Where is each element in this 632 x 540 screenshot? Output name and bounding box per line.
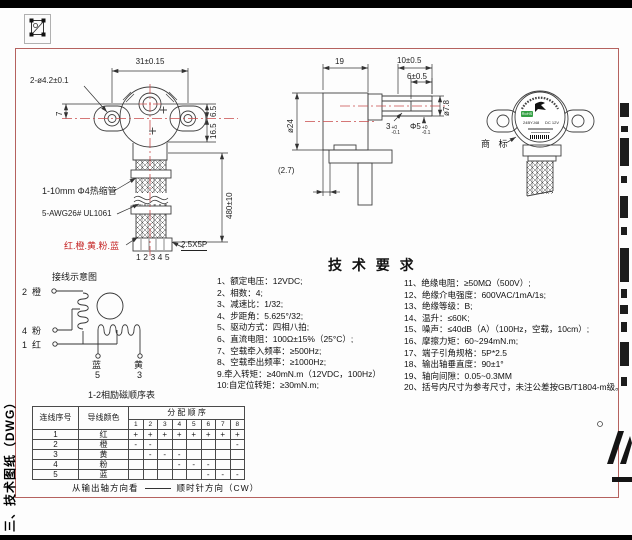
cutoff-glyph-fragment: [620, 103, 629, 117]
seq-cell: -: [129, 440, 144, 450]
wire-color: 黄: [79, 450, 129, 460]
step-number: 6: [201, 420, 216, 430]
label-connector-type: 2.5X5P: [181, 240, 207, 251]
terminal-color: 红: [32, 340, 41, 350]
tech-req-item: 9.牵入转矩：≥40mN.m（12VDC，100Hz）: [217, 369, 381, 381]
seq-cell: [129, 450, 144, 460]
rohs-badge: RoHS: [521, 111, 533, 117]
dim-plate-ref: (2.7): [278, 166, 294, 175]
seq-cell: -: [230, 470, 245, 480]
table-header-wire-no: 连线序号: [33, 407, 79, 430]
tech-req-item: 13、绝缘等级：B;: [404, 301, 624, 313]
label-model: 24BYJ48: [523, 120, 539, 125]
seq-cell: [158, 470, 173, 480]
terminal-4-pink: 4粉: [22, 324, 41, 337]
dim-boss-diameter: ø7.8: [442, 100, 451, 116]
step-number: 5: [187, 420, 202, 430]
wire-no: 1: [33, 430, 79, 440]
tech-req-item: 16、摩擦力矩：60~294mN.m;: [404, 336, 624, 348]
seq-cell: +: [129, 430, 144, 440]
label-wire-spec: 5-AWG26# UL1061: [42, 209, 112, 218]
cutoff-glyph-fragment: [620, 196, 628, 218]
dim-mounting-holes: 2-ø4.2±0.1: [30, 76, 69, 85]
step-number: 8: [230, 420, 245, 430]
tech-req-item: 17、端子引角规格：5P*2.5: [404, 348, 624, 360]
side-view-linework: [323, 93, 432, 205]
tech-req-item: 8、空载牵出频率：≥1000Hz;: [217, 357, 381, 369]
label-url-line: [528, 128, 553, 130]
cutoff-glyph-fragment: [620, 342, 629, 366]
seq-cell: [143, 460, 158, 470]
cutoff-glyph-fragment: [620, 248, 629, 282]
tech-requirements-left-column: 1、额定电压：12VDC; 2、相数：4; 3、减速比：1/32; 4、步距角：…: [217, 276, 381, 392]
drawing-sheet: 三、技术图纸（DWG）: [0, 0, 632, 540]
dim-shaft-base: Φ5: [410, 122, 421, 131]
terminal-number: 2: [22, 287, 32, 297]
table-header-sequence: 分 配 顺 序: [129, 407, 245, 420]
dim-flat-tol-lower: -0.1: [391, 131, 400, 136]
dim-6-5: 6.5: [209, 106, 218, 117]
terminal-number: 1: [22, 340, 32, 350]
wire-no: 2: [33, 440, 79, 450]
dim-shaft-diameter: Φ5+0-0.1: [410, 122, 430, 136]
step-number: 3: [158, 420, 173, 430]
wire-color: 红: [79, 430, 129, 440]
seq-cell: [216, 440, 231, 450]
seq-cell: [158, 440, 173, 450]
tech-req-item: 12、绝缘介电强度：600VAC/1mA/1s;: [404, 290, 624, 302]
side-view-centerlines: [305, 106, 448, 122]
seq-cell: -: [201, 460, 216, 470]
dim-hole-spacing: 31±0.15: [126, 57, 174, 66]
terminal-1-red: 1红: [22, 338, 41, 351]
seq-cell: +: [172, 430, 187, 440]
seq-cell: [230, 460, 245, 470]
tech-req-item: 4、步距角：5.625°/32;: [217, 311, 381, 323]
seq-cell: [187, 450, 202, 460]
tech-req-item: 18、输出轴垂直度：90±1°: [404, 359, 624, 371]
sequence-table: 连线序号 导线颜色 分 配 顺 序 1 2 3 4 5 6 7 8 1 红 + …: [32, 406, 245, 480]
label-pin-numbers: 12345: [136, 252, 172, 262]
tech-req-item: 7、空载牵入频率：≥500Hz;: [217, 346, 381, 358]
terminal-3-yellow-num: 3: [137, 370, 142, 380]
seq-cell: +: [187, 430, 202, 440]
cutoff-glyph-fragment: [620, 305, 628, 314]
seq-cell: -: [143, 450, 158, 460]
seq-cell: -: [201, 470, 216, 480]
seq-cell: -: [172, 460, 187, 470]
wiring-diagram-linework: [52, 289, 142, 358]
bottom-right-cutoff-logo: [607, 431, 632, 482]
table-footer-note: 从输出轴方向看 顺时针方向（CW）: [72, 482, 259, 494]
step-number: 4: [172, 420, 187, 430]
seq-cell: -: [172, 450, 187, 460]
sheet-side-label: 三、技术图纸（DWG）: [1, 396, 18, 532]
dim-shaft-tol-lower: -0.1: [422, 131, 431, 136]
wire-no: 5: [33, 470, 79, 480]
wire-no: 4: [33, 460, 79, 470]
tech-req-item: 19、轴向间隙：0.05~0.3MM: [404, 371, 624, 383]
seq-cell: [201, 440, 216, 450]
seq-cell: [201, 450, 216, 460]
dim-flat-base: 3: [386, 122, 390, 131]
wiring-diagram-title: 接线示意图: [52, 270, 97, 283]
seq-cell: [158, 460, 173, 470]
seq-cell: +: [230, 430, 245, 440]
seq-cell: -: [143, 440, 158, 450]
dim-shaft-offset: 7: [55, 112, 64, 116]
seq-cell: +: [216, 430, 231, 440]
footer-view-direction: 从输出轴方向看: [72, 482, 139, 494]
dim-shaft-length: 10±0.5: [397, 56, 421, 65]
seq-cell: [129, 470, 144, 480]
seq-cell: [172, 470, 187, 480]
seq-cell: [187, 470, 202, 480]
step-number: 1: [129, 420, 144, 430]
wire-color: 橙: [79, 440, 129, 450]
table-header-wire-color: 导线颜色: [79, 407, 129, 430]
tech-requirements-right-column: 11、绝缘电阻：≥50MΩ（500V）; 12、绝缘介电强度：600VAC/1m…: [404, 278, 624, 394]
rotor-circle: [97, 293, 123, 319]
step-number: 7: [216, 420, 231, 430]
tech-req-item: 6、直流电阻：100Ω±15%（25°C）;: [217, 334, 381, 346]
wire-color: 粉: [79, 460, 129, 470]
seq-cell: [129, 460, 144, 470]
sequence-table-title: 1-2相励磁顺序表: [88, 388, 155, 401]
dim-body-diameter: ø24: [286, 119, 295, 133]
seq-cell: +: [143, 430, 158, 440]
terminal-color: 橙: [32, 287, 41, 297]
seq-cell: -: [187, 460, 202, 470]
cutoff-glyph-fragment: [620, 138, 629, 166]
terminal-color: 粉: [32, 326, 41, 336]
label-voltage: DC 12V: [545, 120, 559, 125]
tech-req-item: 1、额定电压：12VDC;: [217, 276, 381, 288]
tech-req-item: 2、相数：4;: [217, 288, 381, 300]
table-row: 2 橙 - - -: [33, 440, 245, 450]
wire-color: 蓝: [79, 470, 129, 480]
tech-req-item: 15、噪声：≤40dB（A）（100Hz，空载，10cm）;: [404, 324, 624, 336]
cutoff-glyph-fragment: [621, 322, 627, 332]
seq-cell: -: [230, 440, 245, 450]
terminal-number: 4: [22, 326, 32, 336]
label-heatshrink-tube: 1-10mm Φ4热缩管: [42, 184, 117, 197]
dim-16-5: 16.5: [209, 123, 218, 139]
tech-req-item: 14、温升：≤60K;: [404, 313, 624, 325]
coil-horizontal: [98, 325, 140, 336]
tech-req-item: 11、绝缘电阻：≥50MΩ（500V）;: [404, 278, 624, 290]
terminal-5-blue-num: 5: [95, 370, 100, 380]
seq-cell: +: [158, 430, 173, 440]
table-row: 5 蓝 - - -: [33, 470, 245, 480]
tech-requirements-title: 技 术 要 求: [328, 255, 417, 275]
label-wire-colors: 红.橙.黄.粉.蓝: [64, 239, 119, 252]
wire-no: 3: [33, 450, 79, 460]
dim-body-length: 19: [335, 57, 344, 66]
image-placeholder-icon[interactable]: [25, 15, 51, 44]
seq-cell: [216, 460, 231, 470]
footer-dash: [145, 488, 171, 489]
seq-cell: [187, 440, 202, 450]
table-row: 4 粉 - - -: [33, 460, 245, 470]
label-barcode: [530, 135, 550, 139]
table-row: 1 红 + + + + + + + +: [33, 430, 245, 440]
cutoff-glyph-fragment: [621, 227, 627, 235]
cutoff-glyph-fragment: [621, 377, 627, 386]
terminal-2-orange: 2橙: [22, 285, 41, 298]
footer-rotation-direction: 顺时针方向（CW）: [177, 482, 260, 494]
trademark-callout: 商 标: [481, 137, 511, 150]
seq-cell: [143, 470, 158, 480]
seq-cell: [230, 450, 245, 460]
dim-wire-length: 480±10: [225, 192, 234, 219]
seq-cell: -: [158, 450, 173, 460]
tech-req-item: 20、括号内尺寸为参考尺寸，未注公差按GB/T1804-m级。: [404, 382, 624, 394]
cutoff-glyph-fragment: [621, 289, 627, 298]
coil-vertical: [78, 293, 89, 329]
cutoff-glyph-fragment: [621, 126, 628, 132]
cutoff-glyph-fragment: [621, 176, 627, 183]
label-model-row: 24BYJ48 DC 12V: [523, 120, 559, 125]
seq-cell: +: [201, 430, 216, 440]
table-row: 3 黄 - - -: [33, 450, 245, 460]
tech-req-item: 10:自定位转矩：≥30mN.m;: [217, 380, 381, 392]
tech-req-item: 3、减速比：1/32;: [217, 299, 381, 311]
dim-flat-length: 6±0.5: [407, 72, 427, 81]
seq-cell: [216, 450, 231, 460]
tech-req-item: 5、驱动方式：四相八拍;: [217, 322, 381, 334]
dim-shaft-flat: 3+0-0.1: [386, 122, 400, 136]
registered-mark-icon: [598, 422, 603, 427]
step-number: 2: [143, 420, 158, 430]
label-phone-line: [531, 132, 550, 134]
seq-cell: -: [216, 470, 231, 480]
seq-cell: [172, 440, 187, 450]
